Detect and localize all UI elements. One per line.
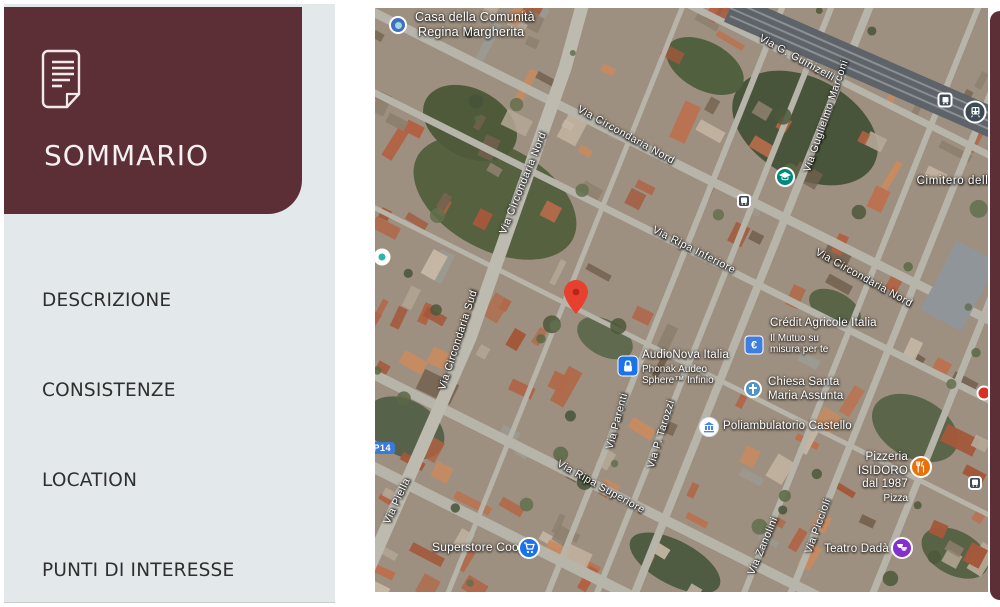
church-icon [744, 380, 762, 398]
poi-label-superstore-coop: Superstore Coop [432, 540, 526, 554]
right-accent-bar [990, 11, 1000, 600]
area-label-cimitero: Cimitero delle [917, 175, 988, 187]
generic-poi-icon [977, 386, 989, 401]
satellite-map-image: Via Circondaria Nord Via Circondaria Nor… [375, 8, 988, 592]
theater-icon [891, 537, 913, 559]
bank-icon: € [745, 336, 764, 355]
document-icon [40, 49, 86, 116]
toc-item-punti-di-interesse: PUNTI DI INTERESSE [42, 556, 301, 586]
poi-label-casa-della-comunita: Casa della Comunità Regina Margherita [415, 10, 535, 40]
hospital-icon [699, 417, 719, 437]
bus-stop-icon [968, 476, 982, 490]
community-center-icon [389, 16, 407, 34]
poi-label-pizzeria-isidoro: Pizzeria ISIDORO dal 1987 Pizza [825, 451, 908, 504]
brochure-page: SOMMARIO DESCRIZIONE CONSISTENZE LOCATIO… [0, 0, 1000, 607]
route-badge-sp14: SP14 [375, 442, 395, 454]
toc-item-location: LOCATION [42, 466, 301, 496]
sidebar: SOMMARIO DESCRIZIONE CONSISTENZE LOCATIO… [4, 4, 335, 603]
poi-label-teatro-dada: Teatro Dadà [823, 543, 889, 557]
bus-stop-icon [737, 194, 751, 208]
toc-list: DESCRIZIONE CONSISTENZE LOCATION PUNTI D… [42, 226, 301, 607]
poi-label-chiesa-santa-maria: Chiesa Santa Maria Assunta [768, 376, 843, 403]
page-title: SOMMARIO [44, 139, 209, 172]
location-pin-icon [564, 280, 588, 319]
restaurant-icon [910, 456, 932, 478]
toc-item-consistenze: CONSISTENZE [42, 376, 301, 406]
poi-label-poliambulatorio: Poliambulatorio Castello [723, 420, 852, 434]
poi-label-credit-agricole: Crédit Agricole Italia Il Mutuo su misur… [770, 317, 877, 356]
poi-label-audionova: AudioNova Italia Phonak Audeo Sphere™ In… [642, 349, 729, 387]
sommario-header: SOMMARIO [4, 7, 302, 214]
toc-item-descrizione: DESCRIZIONE [42, 286, 301, 316]
hearing-store-icon [618, 356, 639, 377]
school-icon [775, 167, 795, 187]
train-station-icon [964, 101, 987, 124]
bus-stop-icon [938, 93, 953, 108]
supermarket-icon [518, 537, 540, 559]
